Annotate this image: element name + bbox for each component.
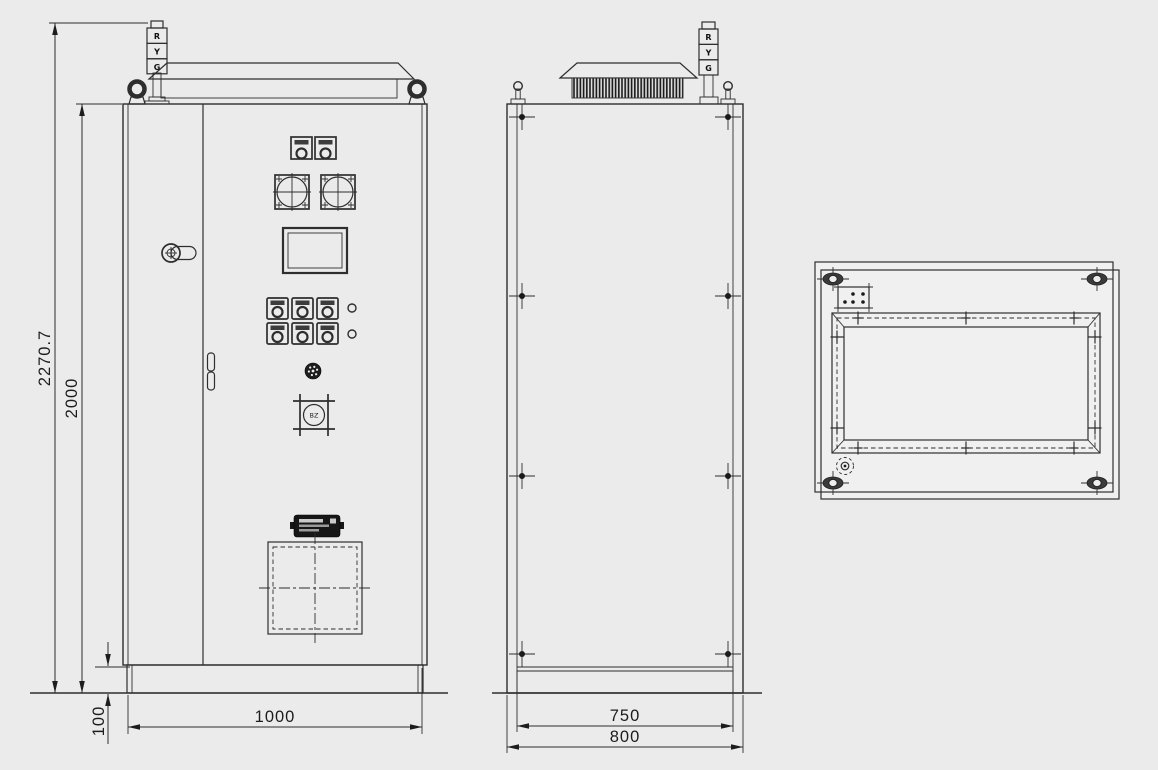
louver-opening-front bbox=[259, 533, 371, 643]
signal-tower-front: R Y G bbox=[145, 21, 169, 104]
tower-pole bbox=[704, 75, 713, 97]
door-latch bbox=[208, 353, 215, 390]
dim-plinth-depth-value: 750 bbox=[610, 707, 641, 725]
panel-screws-side bbox=[509, 104, 741, 667]
side-view: R Y G bbox=[492, 22, 762, 693]
tower-label-g: G bbox=[154, 63, 161, 72]
tower-pole bbox=[153, 73, 161, 97]
vent-hood bbox=[149, 63, 414, 79]
signal-tower-side: R Y G bbox=[699, 22, 718, 104]
tower-cap bbox=[702, 22, 715, 29]
control-button bbox=[292, 298, 313, 319]
dim-overall-height-value: 2270.7 bbox=[36, 330, 54, 386]
lifting-lug-left-side bbox=[511, 82, 525, 104]
buzzer-label: BZ bbox=[310, 412, 319, 420]
panel-screw bbox=[509, 104, 535, 130]
cabinet-three-view-drawing: R Y G bbox=[0, 0, 1158, 770]
cabinet-body-side bbox=[507, 104, 743, 693]
control-button bbox=[317, 323, 338, 344]
panel-screw bbox=[509, 463, 535, 489]
control-button-grid bbox=[267, 298, 356, 344]
panel-screw bbox=[715, 463, 741, 489]
roof-vent-front bbox=[149, 63, 414, 98]
panel-screw bbox=[715, 283, 741, 309]
panel-screw bbox=[715, 104, 741, 130]
lifting-lug-right-side bbox=[721, 82, 735, 104]
roof-vent-side bbox=[560, 63, 697, 98]
engineering-drawing-page: R Y G bbox=[0, 0, 1158, 770]
hmi-display bbox=[283, 228, 347, 273]
control-button bbox=[292, 323, 313, 344]
dim-cabinet-width: 1000 bbox=[128, 708, 422, 727]
selector-knob bbox=[305, 363, 321, 379]
dimensions: 2270.7 2000 100 1000 750 800 bbox=[36, 23, 743, 753]
control-button bbox=[317, 298, 338, 319]
indicator-lamp-2 bbox=[315, 137, 336, 159]
dim-cabinet-height: 2000 bbox=[63, 104, 82, 693]
panel-meter-2 bbox=[319, 173, 357, 211]
vent-louvers bbox=[161, 79, 397, 98]
panel-screw bbox=[715, 641, 741, 667]
door-lock-handle bbox=[162, 244, 196, 262]
tower-label-g: G bbox=[705, 64, 712, 73]
dim-plinth-depth: 750 bbox=[517, 707, 733, 726]
control-button bbox=[267, 323, 288, 344]
dim-cabinet-depth-value: 800 bbox=[610, 728, 641, 746]
buzzer: BZ bbox=[293, 394, 335, 436]
indicator-lamp-1 bbox=[291, 137, 312, 159]
tower-label-y: Y bbox=[705, 48, 712, 57]
nameplate bbox=[290, 515, 344, 537]
panel-screw bbox=[509, 283, 535, 309]
panel-meter-1 bbox=[273, 173, 311, 211]
lifting-eye-left bbox=[129, 82, 145, 105]
tower-label-r: R bbox=[705, 33, 711, 42]
control-button bbox=[267, 298, 288, 319]
tower-label-r: R bbox=[154, 32, 160, 41]
pilot-light-2 bbox=[348, 330, 356, 338]
front-view: R Y G bbox=[30, 21, 448, 693]
dim-cabinet-height-value: 2000 bbox=[63, 378, 81, 419]
dim-overall-height: 2270.7 bbox=[36, 23, 55, 693]
tower-label-y: Y bbox=[153, 47, 160, 56]
dim-cabinet-depth: 800 bbox=[507, 728, 743, 747]
panel-screw bbox=[509, 641, 535, 667]
plinth-front bbox=[127, 665, 423, 693]
top-view bbox=[815, 262, 1119, 499]
tower-cap bbox=[151, 21, 163, 28]
lifting-eye-right bbox=[409, 82, 425, 105]
dim-cabinet-width-value: 1000 bbox=[255, 708, 296, 726]
dim-plinth-height-value: 100 bbox=[90, 706, 108, 737]
pilot-light-1 bbox=[348, 304, 356, 312]
